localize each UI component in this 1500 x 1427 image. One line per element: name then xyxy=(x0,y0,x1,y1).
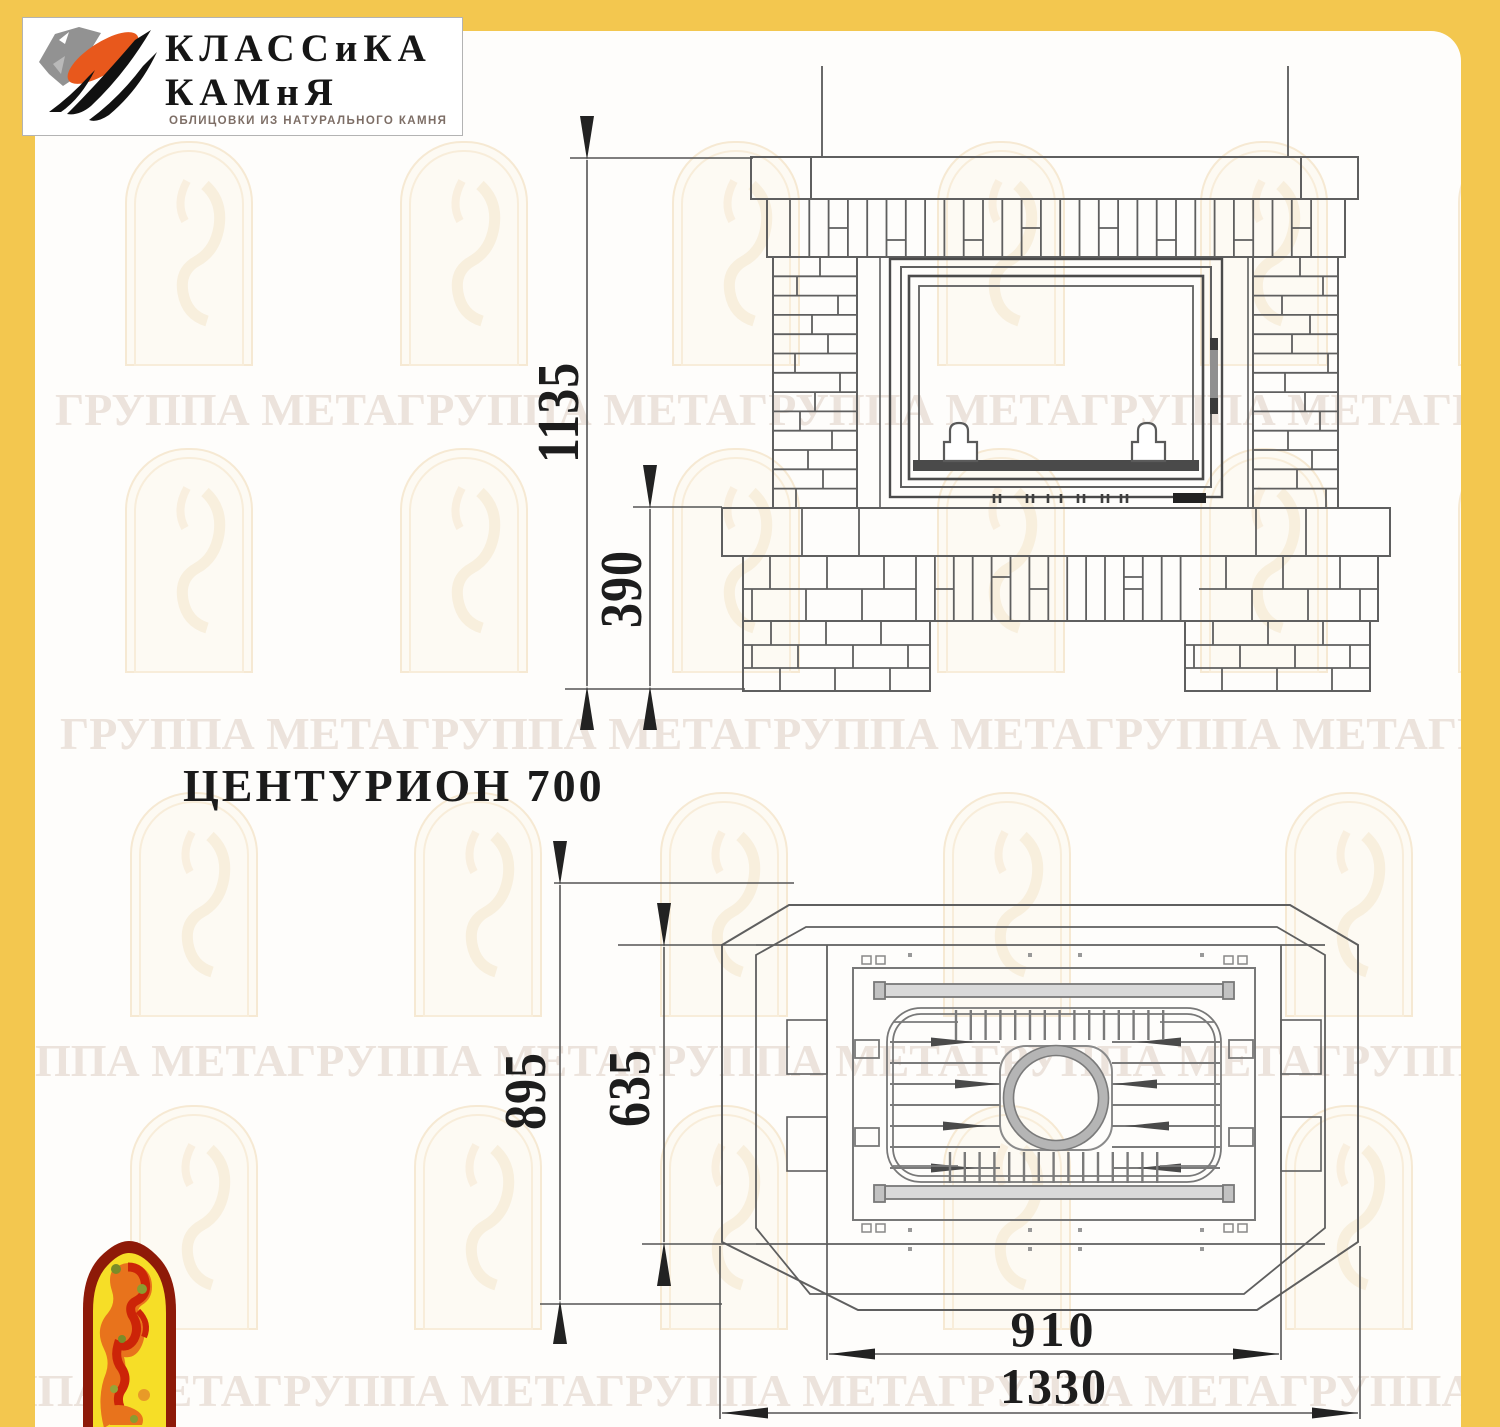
svg-text:390: 390 xyxy=(588,550,654,628)
svg-text:895: 895 xyxy=(492,1052,558,1130)
svg-text:1135: 1135 xyxy=(525,362,591,463)
svg-text:635: 635 xyxy=(596,1049,662,1127)
svg-text:1330: 1330 xyxy=(1000,1358,1108,1414)
svg-text:910: 910 xyxy=(1011,1301,1098,1357)
